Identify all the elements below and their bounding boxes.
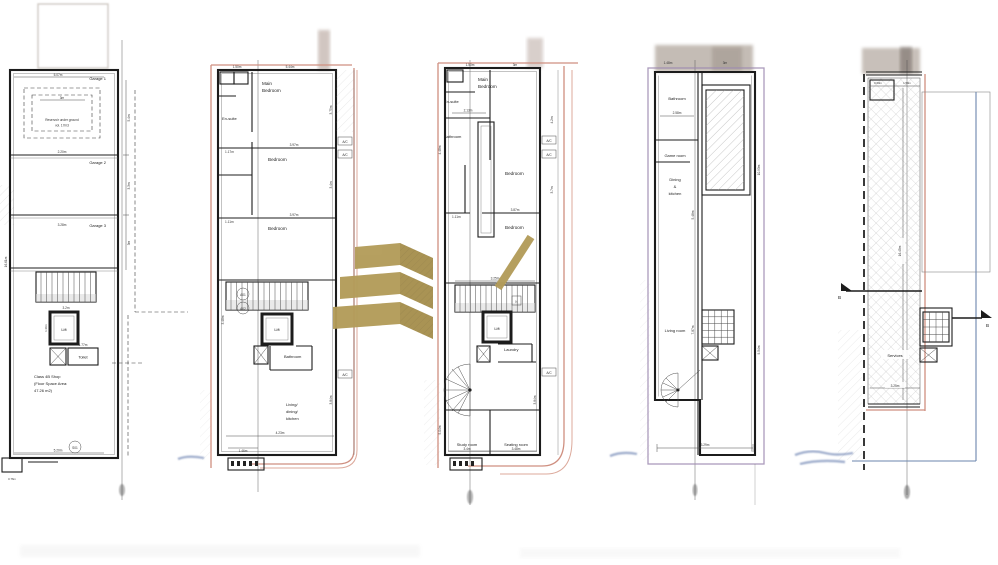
- plan3-laundry-label: Laundry: [504, 347, 518, 352]
- plan3-lift-label: Lift: [494, 326, 500, 331]
- plan4-b1-dim: 3.29m: [701, 443, 710, 447]
- plan4-dining-2: &: [674, 184, 677, 189]
- plan4-gameroom-label: Game room: [664, 153, 686, 158]
- plan2-shaft: [254, 346, 268, 364]
- plan4-vent-box: [702, 346, 718, 360]
- plan3-staircase: 3.25m: [455, 277, 535, 313]
- plan3-lift: Lift: [483, 312, 511, 342]
- reservoir-label-2: vol. 17m3: [55, 124, 69, 128]
- plan1-staircase: 3.2m: [36, 272, 96, 310]
- plan2-ac-units: A/C A/C A/C: [338, 137, 352, 378]
- plan3-t2-dim: 3m: [513, 63, 518, 67]
- plan2-m2-dim: 3.97m: [290, 143, 299, 147]
- plan2-staircase: [226, 282, 308, 310]
- plan4-living-label: Living room: [665, 328, 686, 333]
- plan2-t1-dim: 1.50m: [233, 65, 242, 69]
- reservoir: 3m Reservoir under ground vol. 17m3: [24, 88, 100, 138]
- plan4-r1-dim: 10.93m: [757, 164, 761, 175]
- plan4-bathroom-label: Bathroom: [668, 96, 686, 101]
- watermark-bar2-left: [340, 272, 400, 299]
- datum-lines: [122, 40, 907, 505]
- plan2-m1-dim: 1.17m: [225, 150, 234, 154]
- plan3-stair-dim: 3.25m: [491, 277, 500, 281]
- plan1-r2-dim: 3.3m: [127, 182, 131, 189]
- plan4-bathroom: Bathroom 2.58m: [655, 96, 698, 140]
- plan1-entry-step: 0.76m: [2, 458, 22, 481]
- plan3-laundry: Laundry: [498, 344, 536, 362]
- plan1-g2-dim: 2.20m: [58, 150, 67, 154]
- plan4-c2-dim: 7.87m: [691, 325, 695, 334]
- plan3-bathw-dim: 2.13m: [464, 109, 473, 113]
- plan1-toilet: Toilet 1.77m: [68, 343, 98, 365]
- plan2-bathroom: Bathroom: [270, 346, 312, 370]
- plan3-r1-dim: 4.2m: [550, 116, 554, 123]
- plan2-m3-dim: 1.11m: [225, 220, 234, 224]
- plan1-left-dim: 16.61m: [4, 256, 8, 267]
- plan1-g3-dim: 3.28m: [58, 223, 67, 227]
- plan2-living-2: dining/: [286, 409, 299, 414]
- plan1-badge-label: S01: [72, 446, 78, 450]
- plan3-m1-dim: 1.11m: [452, 215, 461, 219]
- plan1-lift-label: Lift: [61, 327, 67, 332]
- floor-plan-sheet: 3m Reservoir under ground vol. 17m3 Gara…: [0, 0, 998, 565]
- plan3-l2-dim: 5.04m: [438, 425, 442, 434]
- plan4-t2-dim: 3m: [723, 61, 728, 65]
- plan2-main-bedroom-2: Bedroom: [262, 88, 281, 93]
- reservoir-width-dim: 3m: [60, 96, 65, 100]
- plan5-mid-dim: 16.45m: [898, 245, 902, 256]
- plan1-toilet-label: Toilet: [78, 355, 88, 360]
- section-marker-b-right: B: [952, 310, 992, 328]
- plan3-r2-dim: 3.7m: [550, 186, 554, 193]
- plan1-lift-dim: 1.36m: [44, 323, 48, 331]
- plan2-living: Living/ dining/ kitchen: [286, 402, 299, 421]
- plan3-r3-dim: 3.84m: [533, 395, 537, 404]
- plan2-m4-dim: 3.97m: [290, 213, 299, 217]
- plan5-services-label: Services: [887, 353, 902, 358]
- plan1-r3-dim: 3m: [127, 240, 131, 245]
- plan2-b1-dim: 4.23m: [276, 431, 285, 435]
- plan1-bottom-dim: 5.20m: [54, 449, 63, 453]
- plan2-living-3: kitchen: [286, 416, 299, 421]
- plan3-b2-dim: 3.48m: [512, 447, 521, 451]
- plan2-ensuite-label: En-suite: [222, 116, 237, 121]
- plan2-r3-dim: 3.84m: [329, 395, 333, 404]
- plan3-b1-dim: 3.4m: [463, 447, 470, 451]
- plan2-a01-tag: A01: [240, 293, 246, 297]
- plan4-t1-dim: 1.48m: [664, 61, 673, 65]
- section-b-right-label: B: [986, 323, 989, 328]
- plan1-toilet-dim: 1.77m: [79, 343, 88, 347]
- plan1-shaft: [50, 348, 66, 365]
- plan2-main-bedroom-1: Main: [262, 81, 272, 86]
- watermark-bar1-left: [355, 243, 400, 269]
- third-floor-plan: Bathroom 2.58m 1.48m 3m Game room Dining…: [648, 61, 764, 505]
- plan2-t2-dim: 5.44m: [286, 65, 295, 69]
- plan2-living-1: Living/: [286, 402, 298, 407]
- reservoir-label-1: Reservoir under ground: [45, 118, 79, 122]
- plan2-ac2-label: A/C: [342, 153, 348, 157]
- floor-plan-drawing: 3m Reservoir under ground vol. 17m3 Gara…: [0, 0, 998, 565]
- plan4-r2-dim: 9.54m: [757, 345, 761, 354]
- handwritten-annotations: [178, 451, 853, 464]
- plan2-l1-dim: 3.48m: [221, 315, 225, 324]
- shop-label-3: 47.26 m2): [34, 388, 53, 393]
- plan4-skylight: [702, 310, 734, 344]
- shop-label-1: Class 4B Shop: [34, 374, 61, 379]
- plan3-t1-dim: 1.50m: [466, 63, 475, 67]
- first-floor-plan: 1.50m 5.44m Main Bedroom En-suite 1.17m …: [211, 65, 357, 470]
- plan4-dining-kitchen: Dining & kitchen: [669, 177, 682, 196]
- plan2-b2-dim: 1.46m: [239, 449, 248, 453]
- plan2-bedroom3-label: Bedroom: [268, 226, 287, 231]
- plan3-m2-dim: 3.87m: [511, 208, 520, 212]
- shop-label-2: (Floor Space Area:: [34, 381, 67, 386]
- plan3-bathroom-label: Bathroom: [444, 134, 462, 139]
- plan1-stair-dim: 3.2m: [62, 306, 69, 310]
- plan4-terrace: [702, 85, 750, 195]
- plan4-dining-1: Dining: [669, 177, 680, 182]
- plan2-ac3-label: A/C: [342, 373, 348, 377]
- garage2-label: Garage 2: [89, 160, 106, 165]
- plan5-t2-dim: 1.59m: [903, 81, 911, 85]
- plan3-main-bedroom-2: Bedroom: [478, 84, 497, 89]
- plan3-ensuite-label: En-suite: [444, 99, 459, 104]
- plan4-bathw-dim: 2.58m: [673, 111, 682, 115]
- plan5-t1-dim: 0.60m: [874, 81, 882, 85]
- plan2-bedroom2-label: Bedroom: [268, 157, 287, 162]
- watermark-bar3-left: [333, 302, 400, 329]
- plan1-badge: S01: [69, 441, 81, 453]
- plan3-shaft: [477, 346, 490, 362]
- plan1-r1-dim: 5.4m: [127, 114, 131, 121]
- roof-outline: [866, 72, 925, 411]
- plan2-r1-dim: 3.75m: [329, 105, 333, 114]
- plan4-spiral-stair: [661, 370, 700, 407]
- plan1-right-dims: 5.4m 3.3m 3m: [112, 80, 188, 456]
- watermark-logo: [333, 237, 531, 339]
- section-b-left-label: B: [838, 295, 841, 300]
- plan4-c1-dim: 5.48m: [691, 210, 695, 219]
- plan2-a02-tag: A02: [240, 307, 246, 311]
- watermark-diagonal-stroke: [498, 237, 531, 288]
- plan1-shop: Class 4B Shop (Floor Space Area: 47.26 m…: [34, 374, 67, 393]
- plan3-bedroom3-label: Bedroom: [505, 225, 524, 230]
- ground-floor-plan: 3m Reservoir under ground vol. 17m3 Gara…: [2, 70, 188, 481]
- plan2-lift-label: Lift: [274, 327, 280, 332]
- plan2-lift: Lift: [262, 314, 292, 344]
- plan3-ac3-label: A/C: [546, 371, 552, 375]
- plan3-ac2-label: A/C: [546, 153, 552, 157]
- plan1-lift: Lift 1.36m: [44, 312, 78, 344]
- plan3-entry-steps: [450, 458, 482, 470]
- plan3-ac-units: A/C A/C A/C: [542, 136, 556, 376]
- garage3-label: Garage 3: [89, 223, 106, 228]
- plan5-b1-dim: 3.25m: [891, 384, 900, 388]
- plan1-step-dim: 0.76m: [8, 477, 16, 481]
- plan3-bedroom2-label: Bedroom: [505, 171, 524, 176]
- plan3-spiral-stair: [444, 364, 472, 416]
- plan5-vent-box: [920, 348, 937, 362]
- plan4-dining-3: kitchen: [669, 191, 682, 196]
- plan2-bathroom-label: Bathroom: [284, 354, 302, 359]
- plan3-main-bedroom-1: Main: [478, 77, 488, 82]
- plan1-top-dim: 5.07m: [54, 73, 63, 77]
- plan3-l1-dim: 4.48m: [438, 145, 442, 154]
- plan3-ac1-label: A/C: [546, 139, 552, 143]
- plan2-r2-dim: 3.4m: [329, 181, 333, 188]
- plan2-ac1-label: A/C: [342, 140, 348, 144]
